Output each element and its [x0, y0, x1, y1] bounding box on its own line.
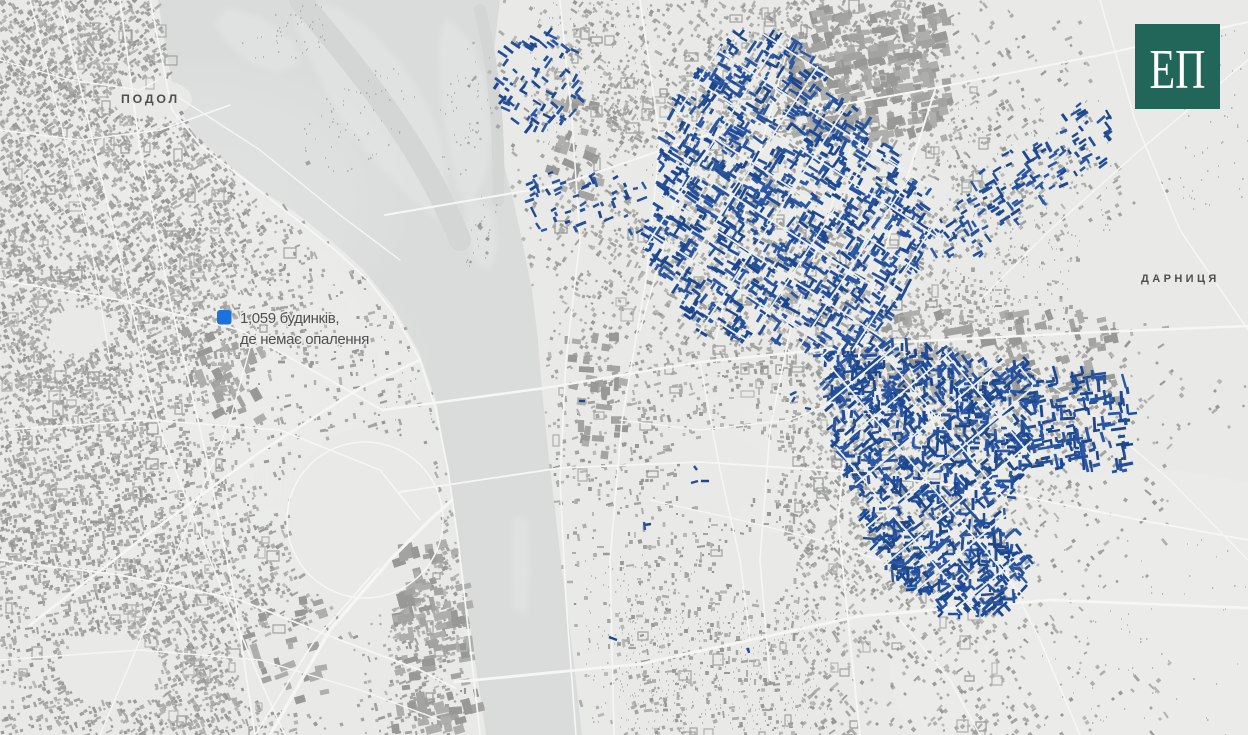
svg-text:ЕП: ЕП: [1150, 39, 1206, 101]
svg-text:1,059 будинків,: 1,059 будинків,: [240, 310, 339, 327]
svg-text:ПОДОЛ: ПОДОЛ: [121, 92, 180, 106]
svg-text:ДАРНИЦЯ: ДАРНИЦЯ: [1141, 273, 1220, 285]
svg-text:де немає опалення: де немає опалення: [240, 331, 369, 348]
